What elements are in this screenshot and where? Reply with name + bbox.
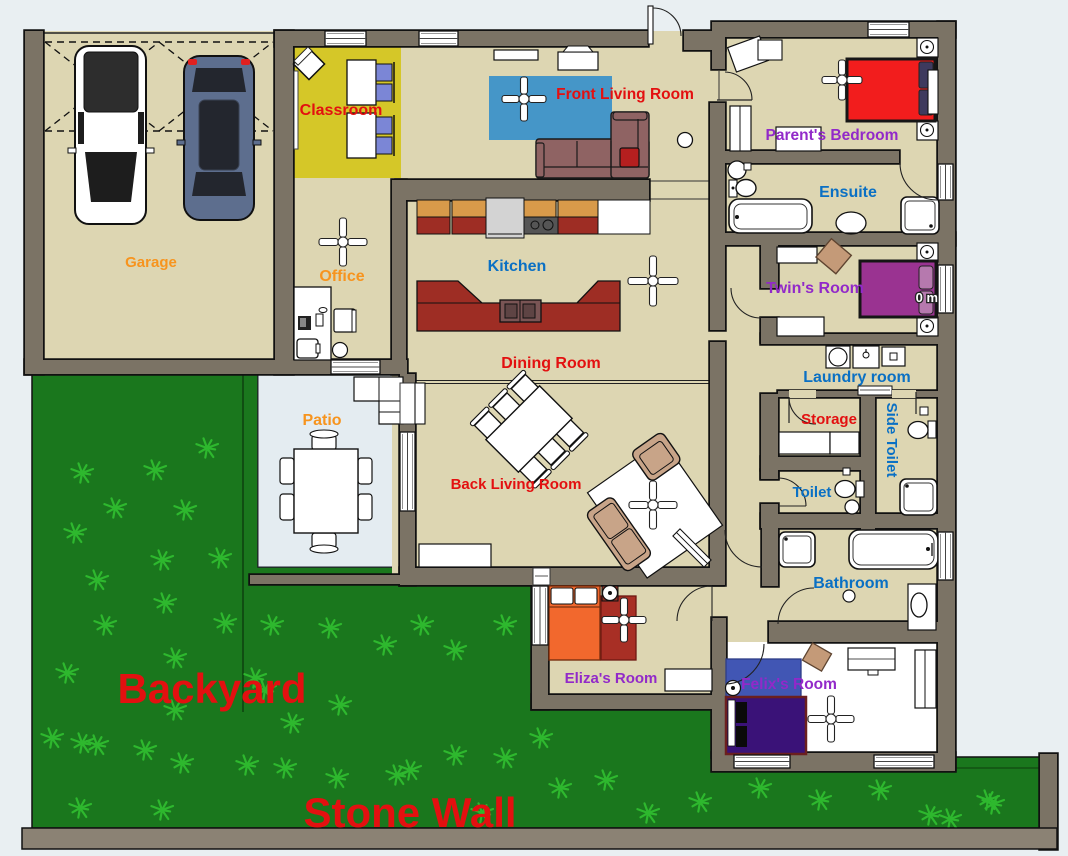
svg-text:Eliza's Room: Eliza's Room <box>565 670 658 687</box>
svg-text:Office: Office <box>319 268 364 285</box>
svg-text:Dining Room: Dining Room <box>501 355 601 372</box>
svg-text:Bathroom: Bathroom <box>813 575 889 592</box>
svg-text:Storage: Storage <box>801 411 857 428</box>
svg-text:Laundry room: Laundry room <box>803 369 911 386</box>
svg-text:Garage: Garage <box>125 254 177 271</box>
svg-text:Felix's Room: Felix's Room <box>741 676 837 693</box>
svg-text:Kitchen: Kitchen <box>488 258 547 275</box>
svg-text:Backyard: Backyard <box>117 665 306 712</box>
svg-text:Ensuite: Ensuite <box>819 184 877 201</box>
svg-text:Twin's Room: Twin's Room <box>766 280 864 297</box>
svg-text:Toilet: Toilet <box>793 484 832 501</box>
svg-text:Parent's Bedroom: Parent's Bedroom <box>766 127 899 144</box>
svg-text:Back Living Room: Back Living Room <box>451 476 582 493</box>
svg-text:Classroom: Classroom <box>300 102 383 119</box>
svg-text:Patio: Patio <box>302 412 341 429</box>
svg-text:Front Living Room: Front Living Room <box>556 86 694 103</box>
svg-text:Side Toilet: Side Toilet <box>883 403 900 478</box>
svg-text:Stone Wall: Stone Wall <box>303 789 516 836</box>
